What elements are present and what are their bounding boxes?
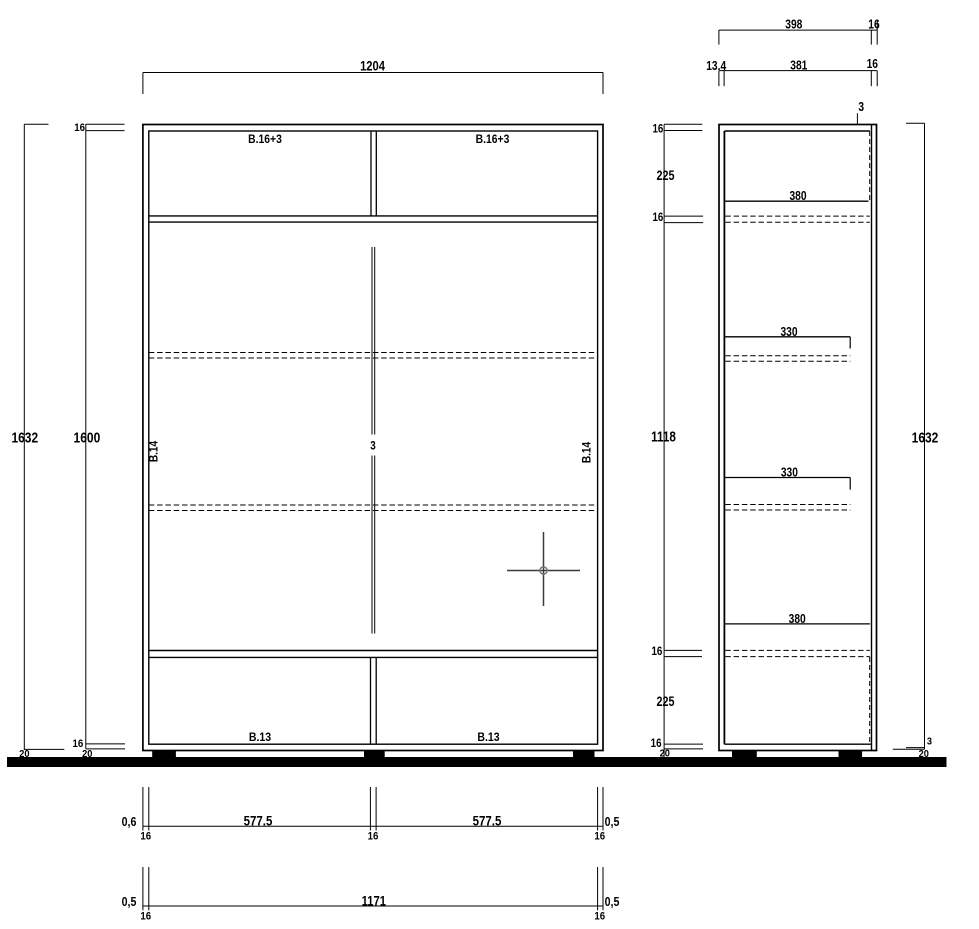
svg-text:3: 3 xyxy=(370,440,375,453)
svg-text:B.14: B.14 xyxy=(581,442,594,463)
svg-text:380: 380 xyxy=(789,190,806,203)
svg-text:398: 398 xyxy=(785,19,802,32)
svg-text:16: 16 xyxy=(74,123,85,135)
svg-text:16: 16 xyxy=(651,645,662,658)
svg-text:577.5: 577.5 xyxy=(244,812,273,828)
svg-text:13.4: 13.4 xyxy=(706,60,727,73)
svg-text:330: 330 xyxy=(780,326,797,339)
svg-text:1632: 1632 xyxy=(912,429,939,446)
svg-text:3: 3 xyxy=(927,736,933,748)
svg-text:1171: 1171 xyxy=(362,893,386,908)
svg-text:380: 380 xyxy=(789,613,806,626)
svg-text:B.14: B.14 xyxy=(148,441,161,462)
svg-text:1204: 1204 xyxy=(360,58,385,73)
svg-text:16: 16 xyxy=(368,831,379,843)
svg-text:16: 16 xyxy=(868,19,879,32)
svg-text:381: 381 xyxy=(790,59,808,72)
svg-text:0,5: 0,5 xyxy=(122,895,137,909)
svg-text:225: 225 xyxy=(656,168,674,183)
svg-text:16: 16 xyxy=(594,831,605,843)
svg-text:577.5: 577.5 xyxy=(473,812,502,828)
svg-text:330: 330 xyxy=(781,467,798,480)
svg-text:0,5: 0,5 xyxy=(605,895,620,909)
svg-text:1632: 1632 xyxy=(11,429,38,446)
svg-text:225: 225 xyxy=(656,694,674,709)
svg-text:16: 16 xyxy=(867,58,878,71)
svg-text:16: 16 xyxy=(652,123,663,136)
svg-text:B.16+3: B.16+3 xyxy=(248,134,282,147)
svg-text:3: 3 xyxy=(858,101,864,114)
svg-text:1118: 1118 xyxy=(651,428,676,445)
svg-text:B.13: B.13 xyxy=(477,731,499,744)
svg-text:0,5: 0,5 xyxy=(605,815,620,829)
svg-text:16: 16 xyxy=(140,911,151,923)
svg-text:16: 16 xyxy=(652,211,663,224)
svg-text:1600: 1600 xyxy=(74,429,101,446)
svg-text:B.13: B.13 xyxy=(249,731,271,744)
svg-text:0,6: 0,6 xyxy=(122,815,137,829)
svg-text:16: 16 xyxy=(594,911,605,923)
svg-text:16: 16 xyxy=(140,831,151,843)
svg-text:B.16+3: B.16+3 xyxy=(476,134,510,147)
